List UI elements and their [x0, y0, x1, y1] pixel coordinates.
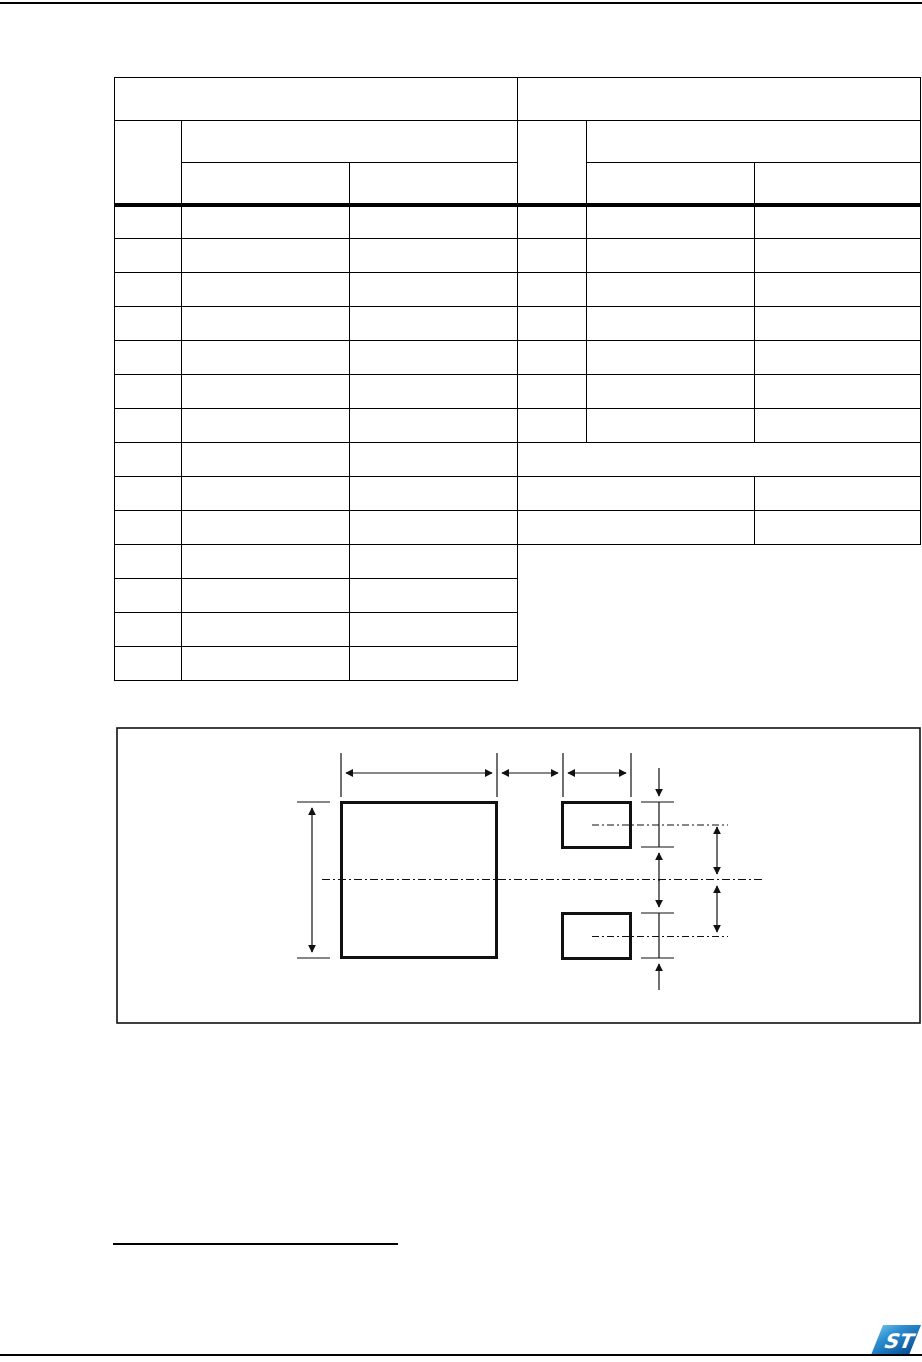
footnote-rule: [113, 1243, 398, 1245]
st-logo: ST: [871, 1324, 921, 1356]
extension-lines: [341, 753, 631, 797]
footprint-figure: [0, 0, 922, 1362]
datasheet-page: ST: [0, 0, 922, 1362]
page-bottom-rule: [0, 1354, 922, 1356]
figure-border: [117, 728, 920, 1023]
